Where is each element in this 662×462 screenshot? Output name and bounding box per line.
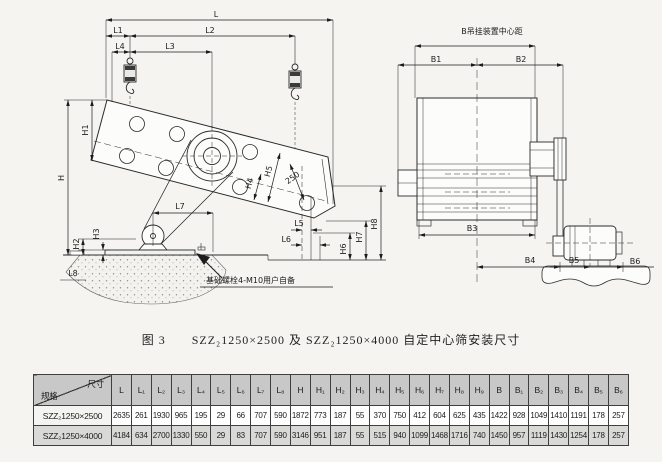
spring-hanger-left: [124, 36, 136, 106]
table-value-cell: 178: [589, 426, 609, 446]
table-header-row: 尺寸 规格 LL₁L₂L₃L₄L₅L₆L₇L₈HH₁H₂H₃H₄H₅H₆H₇H₈…: [34, 375, 629, 406]
front-view-drawing: B吊挂装置中心距 B1 B2 B3 B4 B5 B6: [390, 20, 662, 300]
dimension-table: 尺寸 规格 LL₁L₂L₃L₄L₅L₆L₇L₈HH₁H₂H₃H₄H₅H₆H₇H₈…: [33, 374, 629, 446]
table-value-cell: 750: [390, 406, 410, 426]
table-value-cell: 634: [131, 426, 151, 446]
dim-label-H8: H8: [370, 218, 379, 229]
anchor-bolt-note-text: 基础螺栓4-M10用户自备: [206, 275, 295, 285]
table-value-cell: 1450: [489, 426, 509, 446]
upper-pulley: [554, 138, 566, 180]
dim-label-H7: H7: [355, 231, 364, 242]
dim-label-B2: B2: [516, 55, 527, 64]
table-col-header: H₂: [330, 375, 350, 406]
table-col-header: L₃: [171, 375, 191, 406]
dim-label-L7: L7: [175, 202, 185, 211]
table-value-cell: 515: [370, 426, 390, 446]
table-spec-cell: SZZ₂1250×4000: [34, 426, 112, 446]
table-value-cell: 1330: [171, 426, 191, 446]
table-col-header: L₄: [191, 375, 211, 406]
table-col-header: B₃: [549, 375, 569, 406]
dim-label-L: L: [214, 10, 219, 19]
table-value-cell: 2700: [151, 426, 171, 446]
dim-label-L4: L4: [115, 42, 125, 51]
table-value-cell: 66: [231, 406, 251, 426]
motor-assembly: [105, 225, 205, 255]
side-view-drawing: L L1 L2 L4 L3 H H1 H3 H2 L8: [28, 6, 388, 318]
table-row: SZZ₂1250×4000418463427001330550298370759…: [34, 426, 629, 446]
motor-pulley: [553, 236, 564, 256]
table-value-cell: 707: [251, 426, 271, 446]
table-value-cell: 951: [310, 426, 330, 446]
left-bracket: [398, 170, 417, 196]
table-value-cell: 83: [231, 426, 251, 446]
table-value-cell: 1930: [151, 406, 171, 426]
dim-label-B1: B1: [431, 55, 442, 64]
table-value-cell: 625: [449, 406, 469, 426]
table-value-cell: 1099: [410, 426, 430, 446]
drawing-sheet: L L1 L2 L4 L3 H H1 H3 H2 L8: [0, 0, 662, 462]
table-value-cell: 3146: [290, 426, 310, 446]
table-col-header: L₈: [271, 375, 291, 406]
table-value-cell: 590: [271, 406, 291, 426]
table-col-header: L₇: [251, 375, 271, 406]
table-col-header: H₈: [449, 375, 469, 406]
table-body: SZZ₂1250×2500263526119309651952966707590…: [34, 406, 629, 446]
table-value-cell: 707: [251, 406, 271, 426]
table-value-cell: 1422: [489, 406, 509, 426]
corner-label-dimension: 尺寸: [87, 378, 104, 390]
table-value-cell: 2635: [112, 406, 132, 426]
table-value-cell: 195: [191, 406, 211, 426]
dim-label-L6: L6: [281, 235, 291, 244]
table-value-cell: 1872: [290, 406, 310, 426]
dim-label-B5: B5: [569, 256, 580, 265]
table-value-cell: 940: [390, 426, 410, 446]
figure-caption-label: 图 3: [142, 333, 166, 347]
table-value-cell: 604: [430, 406, 450, 426]
table-col-header: L: [112, 375, 132, 406]
table-value-cell: 55: [350, 426, 370, 446]
table-value-cell: 773: [310, 406, 330, 426]
table-value-cell: 370: [370, 406, 390, 426]
corner-label-spec: 规格: [41, 390, 58, 402]
table-value-cell: 55: [350, 406, 370, 426]
dim-label-B6: B6: [630, 257, 641, 266]
dim-label-H2: H2: [72, 238, 81, 249]
foundation-block: [66, 255, 226, 304]
table-col-header: H₆: [410, 375, 430, 406]
dim-label-B4: B4: [525, 256, 536, 265]
table-col-header: H₉: [469, 375, 489, 406]
table-value-cell: 178: [589, 406, 609, 426]
dim-label-H1: H1: [81, 124, 90, 135]
table-col-header: L₂: [151, 375, 171, 406]
table-value-cell: 590: [271, 426, 291, 446]
table-value-cell: 1191: [569, 406, 589, 426]
table-col-header: L₁: [131, 375, 151, 406]
table-value-cell: 261: [131, 406, 151, 426]
table-col-header: B₂: [529, 375, 549, 406]
table-col-header: B₁: [509, 375, 529, 406]
table-spec-cell: SZZ₂1250×2500: [34, 406, 112, 426]
table-value-cell: 412: [410, 406, 430, 426]
spring-hanger-right: [289, 36, 301, 149]
table-col-header: H₇: [430, 375, 450, 406]
table-value-cell: 435: [469, 406, 489, 426]
table-col-header: B₅: [589, 375, 609, 406]
table-col-header: H₄: [370, 375, 390, 406]
table-value-cell: 740: [469, 426, 489, 446]
dim-label-H3: H3: [92, 228, 101, 239]
table-value-cell: 1049: [529, 406, 549, 426]
table-value-cell: 29: [211, 406, 231, 426]
figure-caption-text: SZZ₂1250×2500 及 SZZ₂1250×4000 自定中心筛安装尺寸: [192, 333, 521, 347]
table-col-header: H₅: [390, 375, 410, 406]
table-value-cell: 257: [608, 406, 628, 426]
table-col-header: L₅: [211, 375, 231, 406]
table-value-cell: 29: [211, 426, 231, 446]
table-value-cell: 1430: [549, 426, 569, 446]
dim-label-L5: L5: [294, 219, 304, 228]
front-view-title: B吊挂装置中心距: [461, 26, 523, 36]
table-value-cell: 4184: [112, 426, 132, 446]
table-value-cell: 187: [330, 426, 350, 446]
dim-lines-front-bottom: [419, 220, 654, 272]
table-value-cell: 965: [171, 406, 191, 426]
table-col-header: L₆: [231, 375, 251, 406]
table-value-cell: 1468: [430, 426, 450, 446]
dim-label-H6: H6: [339, 243, 348, 254]
table-col-header: H: [290, 375, 310, 406]
table-value-cell: 1410: [549, 406, 569, 426]
table-value-cell: 1716: [449, 426, 469, 446]
dim-label-L1: L1: [113, 26, 123, 35]
table-col-header: B: [489, 375, 509, 406]
table-corner-cell: 尺寸 规格: [34, 375, 112, 406]
table-col-header: B₆: [608, 375, 628, 406]
dim-label-L2: L2: [205, 26, 215, 35]
table-value-cell: 550: [191, 426, 211, 446]
dim-label-H: H: [57, 175, 66, 181]
dim-label-B3: B3: [467, 224, 478, 233]
table-value-cell: 1254: [569, 426, 589, 446]
dim-label-L3: L3: [165, 42, 175, 51]
table-value-cell: 1119: [529, 426, 549, 446]
table-value-cell: 257: [608, 426, 628, 446]
table-col-header: H₃: [350, 375, 370, 406]
figure-caption: 图 3SZZ₂1250×2500 及 SZZ₂1250×4000 自定中心筛安装…: [0, 331, 662, 348]
motor-mount: [542, 266, 650, 286]
table-value-cell: 957: [509, 426, 529, 446]
table-row: SZZ₂1250×2500263526119309651952966707590…: [34, 406, 629, 426]
table-col-header: B₄: [569, 375, 589, 406]
dim-label-L8: L8: [68, 269, 78, 278]
screen-box-front: [417, 58, 537, 282]
table-value-cell: 928: [509, 406, 529, 426]
table-value-cell: 187: [330, 406, 350, 426]
table-col-header: H₁: [310, 375, 330, 406]
screen-body: [91, 100, 335, 218]
